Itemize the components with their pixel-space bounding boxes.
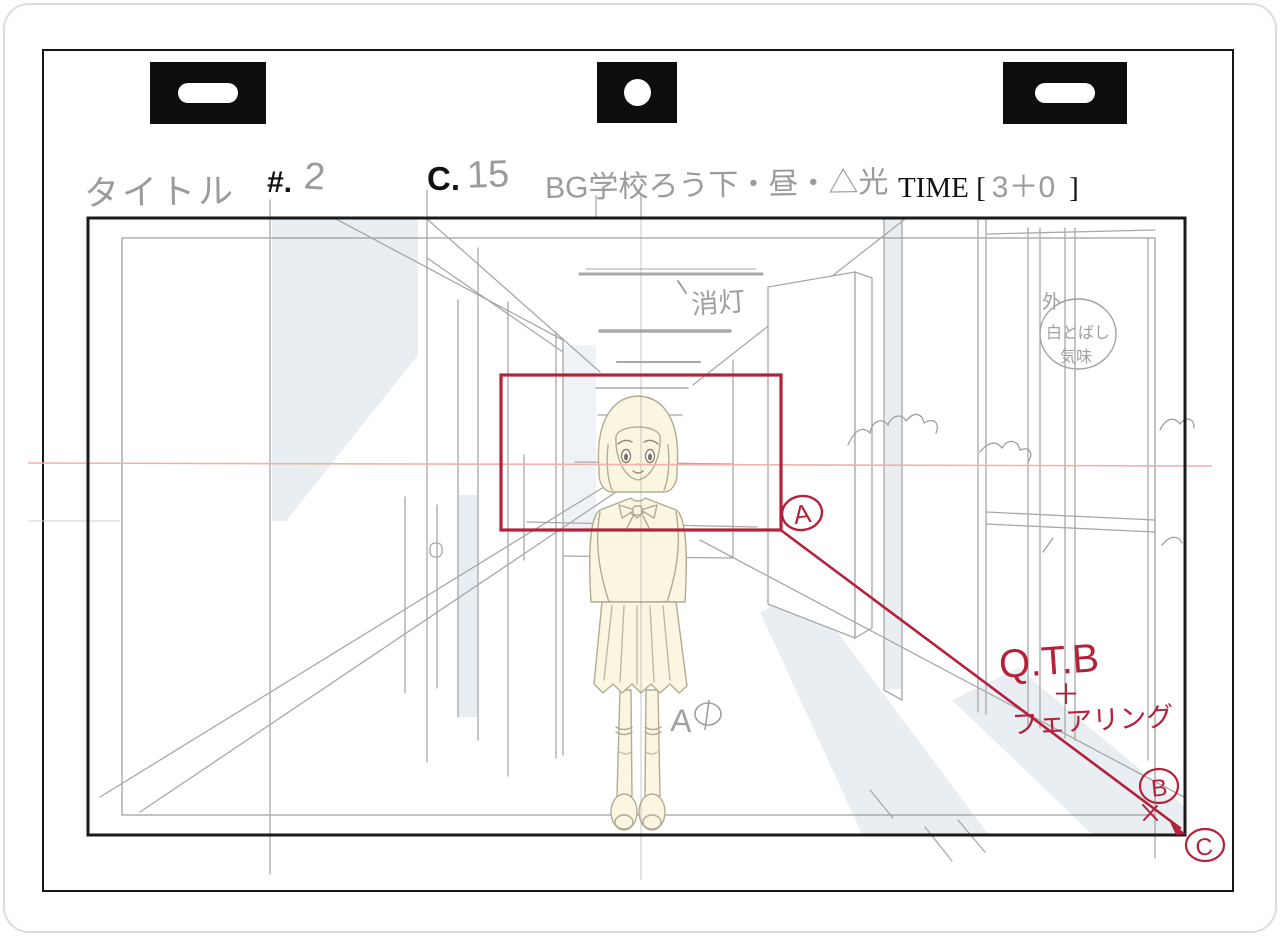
- window-note-line1: 白とばし: [1046, 324, 1110, 342]
- layout-sheet: タイトル #. 2 C. 15 BG学校ろう下・昼・△光 TIME [3＋0]: [0, 0, 1280, 936]
- window-note-line2: 気味: [1060, 348, 1092, 366]
- cel-number-one-mark: [695, 700, 721, 730]
- camera-plus-label: ＋: [1052, 679, 1080, 710]
- window-note-outside: 外: [1042, 291, 1061, 313]
- camera-move-label: Q.T.B: [998, 636, 1101, 687]
- character-girl: [590, 396, 687, 830]
- marker-c-label: C: [1194, 833, 1214, 862]
- cel-label-letter: A: [670, 702, 694, 739]
- marker-b-label: B: [1150, 774, 1169, 803]
- layout-drawing: 消灯 外 白とばし 気味 A A B C: [0, 0, 1280, 936]
- lights-off-note: 消灯: [690, 286, 746, 320]
